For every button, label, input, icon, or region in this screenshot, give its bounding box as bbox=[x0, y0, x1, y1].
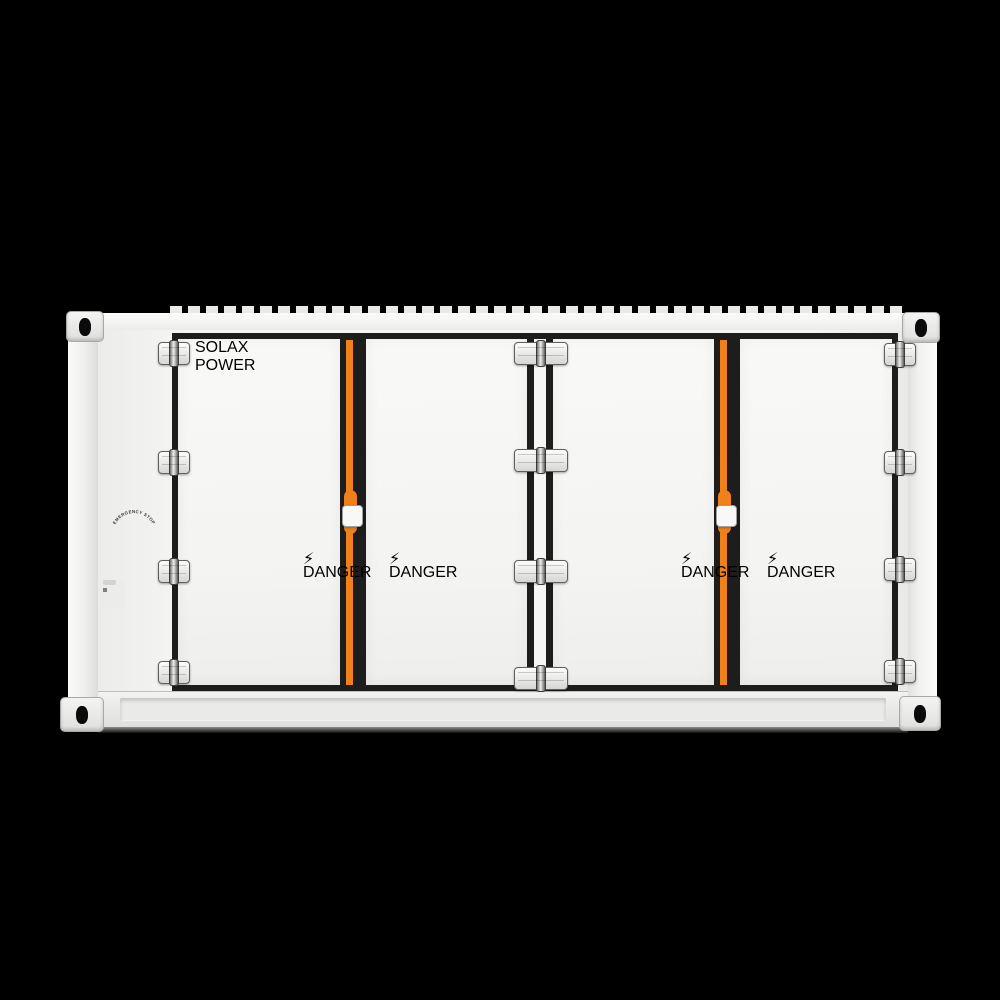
rod-guide bbox=[704, 452, 715, 461]
rod-keeper bbox=[365, 694, 379, 711]
door-4 bbox=[740, 339, 892, 685]
warning-triangle-icon: ⚡ bbox=[767, 549, 784, 563]
danger-sticker: ⚡ DANGER bbox=[303, 549, 320, 575]
hinge-center bbox=[514, 560, 568, 583]
left-corner-post bbox=[68, 316, 99, 726]
hinge-door4 bbox=[884, 558, 916, 581]
hinge-door1 bbox=[158, 342, 190, 365]
socket-switch-bottom bbox=[103, 566, 118, 580]
lightning-icon: ⚡ bbox=[767, 549, 784, 569]
rod-guide bbox=[367, 356, 378, 365]
rod-keeper bbox=[328, 694, 342, 711]
rod-keeper bbox=[739, 694, 753, 711]
stripe-clip-1 bbox=[342, 505, 363, 527]
lock-rod-door-4 bbox=[743, 325, 750, 710]
fire-alarm-panel bbox=[106, 336, 159, 399]
grounding-box-right bbox=[875, 698, 893, 715]
danger-sticker: ⚡ DANGER bbox=[681, 549, 698, 575]
socket-knob bbox=[103, 551, 109, 557]
warning-triangle-icon: ⚡ bbox=[681, 549, 698, 563]
door-junction-center-right-bar bbox=[546, 336, 553, 688]
hinge-door4 bbox=[884, 343, 916, 366]
bottom-rail-groove bbox=[120, 698, 886, 721]
lock-rod-door-2 bbox=[369, 325, 376, 710]
lightning-icon: ⚡ bbox=[389, 549, 406, 569]
brand-name: SOLAX bbox=[195, 339, 267, 357]
grounding-sticker-left bbox=[133, 702, 144, 713]
warning-triangle-icon: ⚡ bbox=[303, 549, 320, 563]
hinge-center bbox=[514, 449, 568, 472]
door-frame-right bbox=[892, 333, 898, 691]
product-image-canvas: ⚡ DANGER ⚡ DANGER ⚡ DANGER ⚡ DANGER SOLA… bbox=[0, 0, 1000, 1000]
drain-hole bbox=[266, 703, 280, 717]
rod-keeper bbox=[702, 694, 716, 711]
fire-alarm-display bbox=[106, 336, 146, 364]
rod-guide bbox=[330, 356, 341, 365]
door-2 bbox=[366, 339, 527, 685]
socket-recess bbox=[103, 551, 149, 588]
rod-guide bbox=[741, 665, 752, 674]
grounding-box-left bbox=[111, 698, 130, 716]
hinge-door1 bbox=[158, 661, 190, 684]
casting-hole bbox=[76, 706, 88, 724]
corner-casting-bottom-left bbox=[60, 697, 104, 732]
corner-casting-bottom-right bbox=[899, 696, 941, 731]
hinge-door4 bbox=[884, 660, 916, 683]
lock-rod-door-1 bbox=[332, 325, 339, 710]
hinge-center bbox=[514, 342, 568, 365]
stripe-clip-3 bbox=[716, 505, 737, 527]
rod-guide bbox=[704, 356, 715, 365]
fire-alarm-button-small bbox=[106, 386, 120, 400]
door-frame-top bbox=[172, 333, 898, 339]
socket-screw bbox=[103, 588, 107, 592]
grounding-sticker-right bbox=[863, 703, 873, 713]
rod-guide bbox=[367, 665, 378, 674]
casting-hole bbox=[915, 319, 927, 337]
danger-sticker: ⚡ DANGER bbox=[389, 549, 406, 575]
door-junction-center-left-bar bbox=[527, 336, 534, 688]
rod-guide bbox=[704, 665, 715, 674]
socket-slot bbox=[103, 580, 116, 585]
fire-alarm-button-large bbox=[106, 364, 128, 386]
hinge-door4 bbox=[884, 451, 916, 474]
rod-guide bbox=[741, 452, 752, 461]
danger-sticker: ⚡ DANGER bbox=[767, 549, 784, 575]
corner-casting-top-left bbox=[66, 311, 104, 342]
rod-guide bbox=[330, 452, 341, 461]
lightning-icon: ⚡ bbox=[303, 549, 320, 569]
door-frame-left bbox=[172, 333, 178, 691]
lightning-icon: ⚡ bbox=[681, 549, 698, 569]
brand-subtitle: POWER bbox=[195, 357, 267, 375]
hinge-door1 bbox=[158, 451, 190, 474]
fire-alarm-faceplate bbox=[106, 336, 159, 400]
emergency-stop-red-cap bbox=[130, 530, 139, 539]
service-socket-box bbox=[103, 551, 163, 598]
brand-logo: SOLAX POWER bbox=[195, 339, 267, 367]
rod-guide bbox=[330, 665, 341, 674]
lock-rod-door-3 bbox=[706, 325, 713, 710]
door-3 bbox=[553, 339, 714, 685]
socket-switch-top bbox=[103, 551, 120, 566]
warning-triangle-icon: ⚡ bbox=[389, 549, 406, 563]
corner-casting-top-right bbox=[902, 312, 940, 343]
casting-hole bbox=[914, 705, 926, 723]
casting-hole bbox=[79, 318, 91, 336]
rod-guide bbox=[741, 356, 752, 365]
bottom-shadow bbox=[98, 727, 908, 733]
socket-cover bbox=[103, 580, 125, 608]
door1-access-panel bbox=[244, 610, 312, 669]
rod-guide bbox=[367, 452, 378, 461]
hinge-center bbox=[514, 667, 568, 690]
socket-knob bbox=[103, 566, 108, 571]
